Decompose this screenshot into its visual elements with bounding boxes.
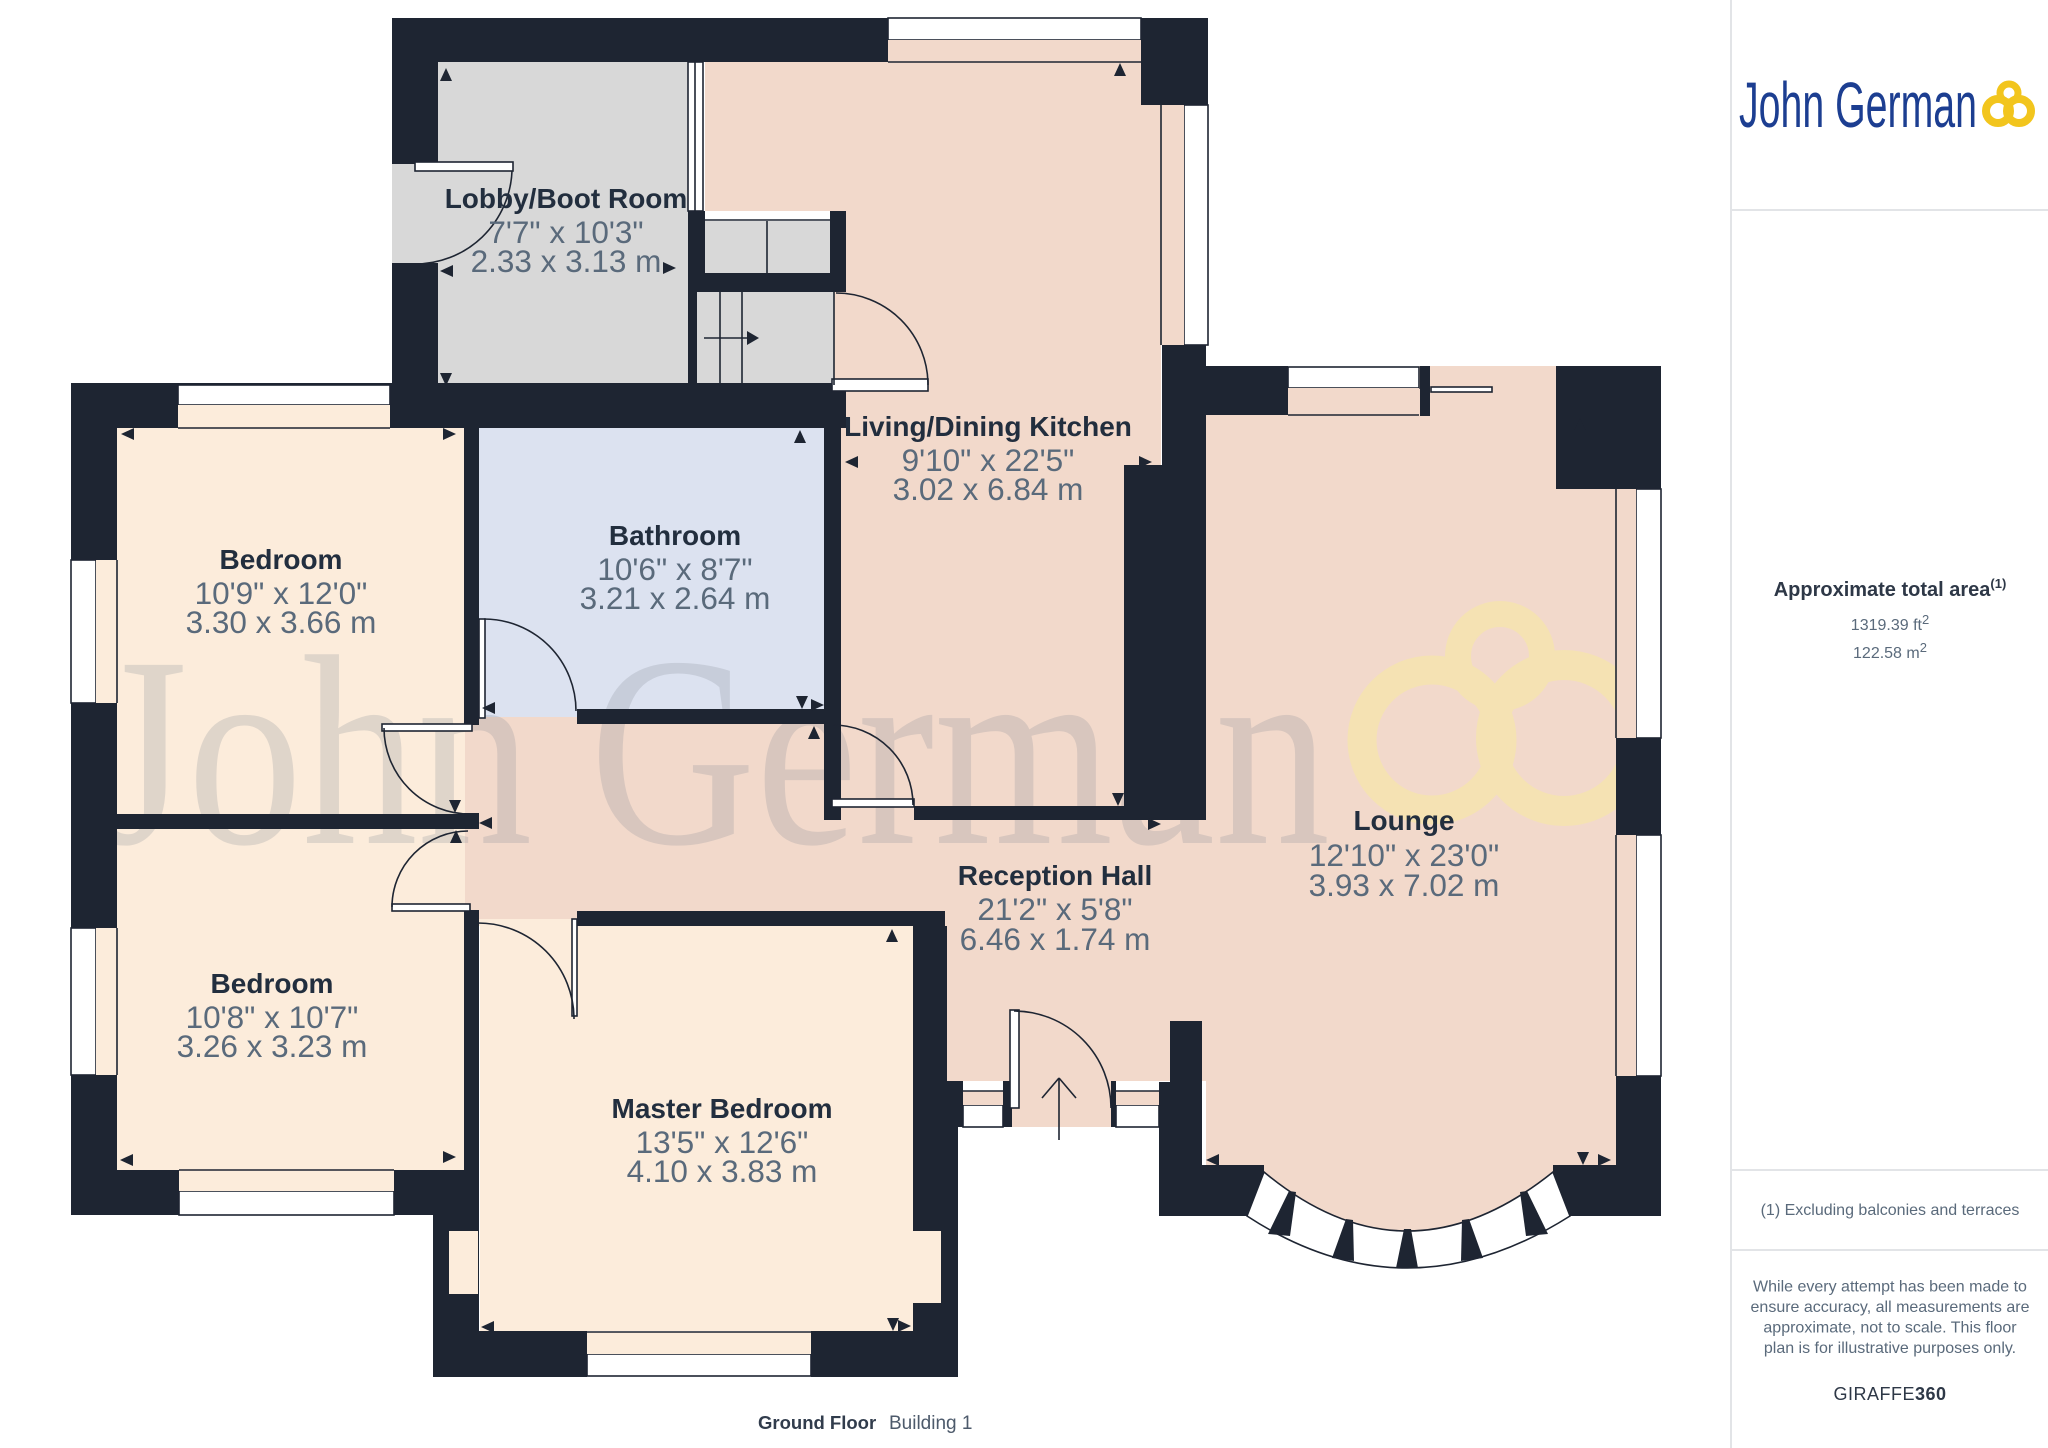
svg-text:Lobby/Boot Room: Lobby/Boot Room: [445, 183, 688, 214]
svg-text:3.02 x 6.84 m: 3.02 x 6.84 m: [893, 471, 1084, 507]
svg-text:Lounge: Lounge: [1353, 805, 1454, 836]
svg-text:Master Bedroom: Master Bedroom: [612, 1093, 833, 1124]
svg-text:GIRAFFE360: GIRAFFE360: [1833, 1384, 1946, 1404]
svg-text:3.26 x 3.23 m: 3.26 x 3.23 m: [177, 1028, 368, 1064]
svg-text:6.46 x 1.74 m: 6.46 x 1.74 m: [960, 921, 1151, 957]
svg-text:4.10 x 3.83 m: 4.10 x 3.83 m: [627, 1153, 818, 1189]
svg-text:John German: John German: [1739, 69, 1977, 141]
svg-text:approximate, not to scale. Thi: approximate, not to scale. This floor: [1763, 1320, 2017, 1337]
svg-text:3.93 x 7.02 m: 3.93 x 7.02 m: [1309, 867, 1500, 903]
svg-text:3.21 x 2.64 m: 3.21 x 2.64 m: [580, 580, 771, 616]
svg-text:Reception Hall: Reception Hall: [958, 860, 1152, 891]
svg-text:Bathroom: Bathroom: [609, 520, 741, 551]
svg-text:3.30 x 3.66 m: 3.30 x 3.66 m: [186, 604, 377, 640]
svg-text:Approximate total area(1): Approximate total area(1): [1774, 576, 2007, 601]
svg-text:plan is for illustrative purpo: plan is for illustrative purposes only.: [1764, 1340, 2016, 1357]
svg-text:2.33 x 3.13 m: 2.33 x 3.13 m: [471, 243, 662, 279]
svg-text:Ground Floor: Ground Floor: [758, 1412, 876, 1433]
svg-text:Bedroom: Bedroom: [211, 968, 334, 999]
svg-text:(1) Excluding balconies and te: (1) Excluding balconies and terraces: [1761, 1202, 2020, 1219]
svg-text:ensure accuracy, all measureme: ensure accuracy, all measurements are: [1751, 1299, 2030, 1316]
svg-text:Bedroom: Bedroom: [220, 544, 343, 575]
svg-text:Living/Dining Kitchen: Living/Dining Kitchen: [844, 411, 1132, 442]
svg-text:While every attempt has been m: While every attempt has been made to: [1753, 1279, 2027, 1296]
svg-text:Building 1: Building 1: [889, 1413, 972, 1434]
